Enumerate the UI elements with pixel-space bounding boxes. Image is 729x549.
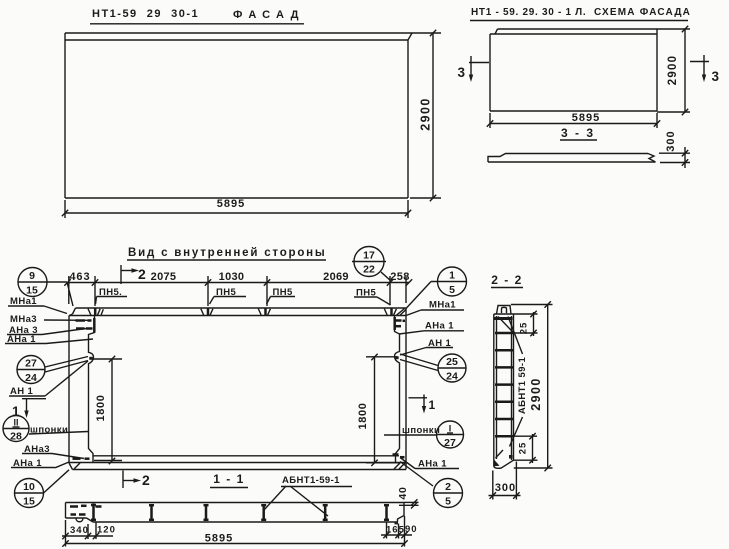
svg-text:5: 5	[449, 284, 455, 296]
svg-text:2 - 2: 2 - 2	[491, 273, 523, 287]
svg-text:1030: 1030	[219, 271, 245, 283]
svg-text:27: 27	[25, 358, 37, 370]
svg-text:5895: 5895	[572, 112, 600, 124]
svg-text:300: 300	[495, 482, 516, 494]
svg-text:5895: 5895	[205, 533, 233, 545]
svg-text:17: 17	[363, 250, 375, 262]
svg-text:ФАСАД: ФАСАД	[233, 9, 305, 21]
svg-text:АНа 1: АНа 1	[425, 321, 454, 332]
svg-text:3: 3	[458, 65, 466, 80]
svg-text:463: 463	[69, 271, 90, 283]
svg-text:120: 120	[97, 525, 116, 536]
svg-text:90: 90	[405, 524, 418, 535]
svg-text:1: 1	[449, 270, 455, 282]
svg-text:1800: 1800	[95, 395, 107, 422]
svg-text:340: 340	[70, 525, 89, 536]
svg-text:АБНТ1 59-1: АБНТ1 59-1	[517, 357, 528, 415]
svg-text:10: 10	[23, 481, 35, 493]
svg-text:300: 300	[665, 130, 677, 151]
svg-text:25: 25	[446, 356, 458, 368]
svg-text:2900: 2900	[667, 55, 679, 85]
svg-text:2075: 2075	[151, 271, 177, 283]
svg-text:НТ1-59 29 30-1: НТ1-59 29 30-1	[92, 8, 199, 20]
svg-text:МНа3: МНа3	[10, 314, 37, 325]
svg-text:МНа1: МНа1	[429, 300, 456, 311]
svg-text:I: I	[449, 424, 452, 434]
svg-text:2900: 2900	[529, 377, 543, 410]
svg-text:40: 40	[397, 486, 409, 499]
svg-text:СХЕМА ФАСАДА: СХЕМА ФАСАДА	[594, 7, 691, 18]
svg-text:15: 15	[23, 496, 35, 508]
svg-text:24: 24	[25, 372, 37, 384]
svg-text:5: 5	[445, 496, 451, 508]
svg-text:28: 28	[10, 431, 22, 443]
svg-text:27: 27	[444, 437, 456, 449]
svg-text:2: 2	[142, 472, 150, 488]
svg-text:1: 1	[429, 398, 436, 412]
svg-text:25: 25	[518, 442, 529, 455]
svg-text:258: 258	[390, 271, 410, 283]
svg-text:Вид с внутренней стороны: Вид с внутренней стороны	[128, 247, 327, 259]
svg-text:АБНТ1-59-1: АБНТ1-59-1	[282, 475, 340, 486]
svg-text:2900: 2900	[419, 97, 433, 130]
svg-text:15: 15	[26, 285, 38, 297]
svg-text:5895: 5895	[217, 198, 245, 210]
svg-text:3: 3	[712, 69, 720, 84]
svg-text:НТ1 - 59. 29. 30 - 1 Л.: НТ1 - 59. 29. 30 - 1 Л.	[471, 7, 586, 18]
svg-text:II: II	[13, 418, 18, 428]
svg-text:2069: 2069	[323, 271, 349, 283]
svg-text:2: 2	[138, 266, 146, 282]
svg-text:25: 25	[519, 322, 530, 335]
svg-text:165: 165	[386, 525, 405, 536]
svg-text:2: 2	[445, 481, 451, 493]
svg-text:1 - 1: 1 - 1	[213, 472, 245, 486]
svg-text:9: 9	[29, 270, 35, 282]
svg-text:24: 24	[446, 371, 458, 383]
svg-text:1800: 1800	[357, 403, 369, 430]
svg-text:22: 22	[363, 264, 375, 276]
svg-text:3 - 3: 3 - 3	[561, 126, 595, 140]
